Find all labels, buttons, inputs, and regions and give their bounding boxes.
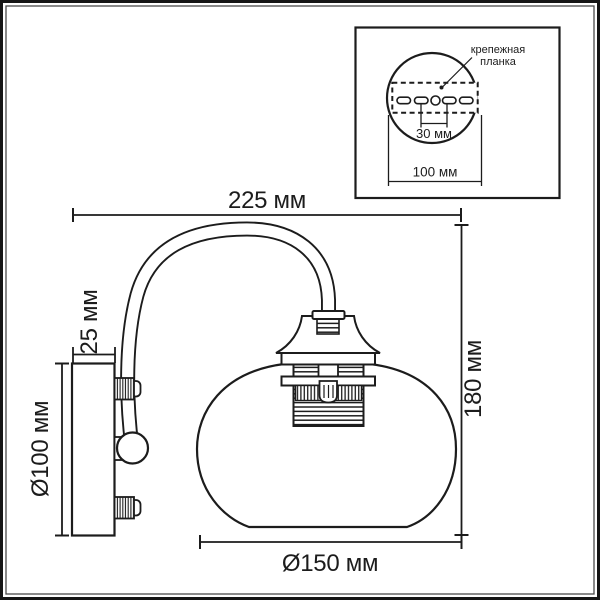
inset-mounting-detail: крепежная планка 30 мм 100 мм [356, 28, 560, 199]
dim-base-diameter-label: Ø100 мм [27, 401, 54, 497]
mounting-screw-bottom [115, 497, 141, 519]
pivot-ball [117, 433, 148, 464]
dim-shade-diameter-label: Ø150 мм [282, 550, 378, 577]
wall-base [72, 364, 148, 536]
socket-flange-upper [282, 353, 376, 365]
wall-plate [72, 364, 115, 536]
dim-base-depth-label: 25 мм [76, 290, 103, 355]
callout-text-line2: планка [480, 56, 517, 68]
drawing-svg: крепежная планка 30 мм 100 мм 225 мм 180… [0, 0, 600, 600]
dimension-drawing-page: крепежная планка 30 мм 100 мм 225 мм 180… [0, 0, 600, 600]
callout-text-line1: крепежная [471, 44, 526, 56]
dim-plate-width-label: 100 мм [413, 165, 458, 180]
mounting-screw-top [115, 378, 141, 400]
inset-box [356, 28, 560, 199]
dim-height-label: 180 мм [460, 340, 487, 418]
dim-width-label: 225 мм [228, 187, 306, 214]
dim-hole-spacing-label: 30 мм [416, 126, 452, 141]
socket-collar [313, 311, 345, 319]
